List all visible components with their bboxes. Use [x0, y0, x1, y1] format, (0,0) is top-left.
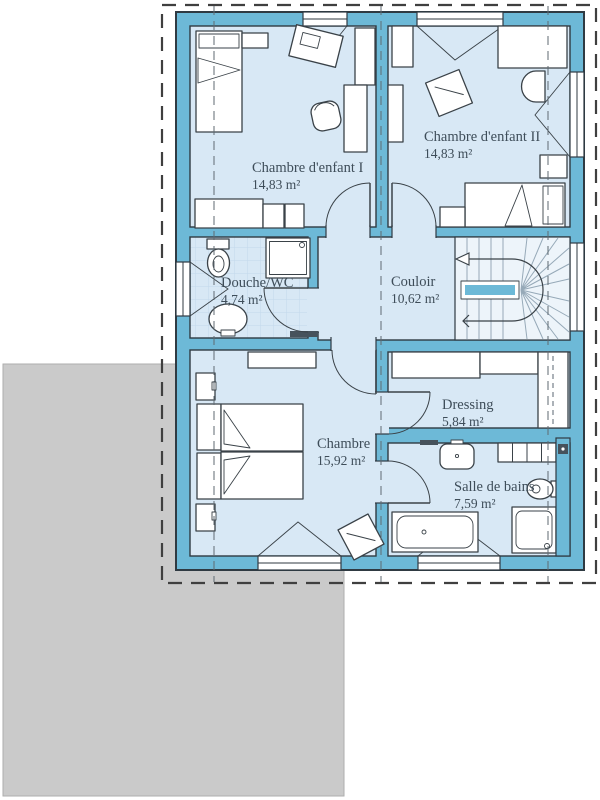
- cabinet-row: [498, 443, 556, 462]
- room-area: 5,84 m²: [442, 414, 484, 429]
- shelf: [242, 33, 268, 48]
- shelf: [420, 440, 438, 445]
- cabinet: [355, 28, 375, 85]
- stair-rail: [465, 285, 515, 295]
- pillow: [199, 34, 239, 48]
- room-area: 10,62 m²: [391, 291, 439, 306]
- shower: [266, 238, 310, 278]
- floor-plan-page: Chambre d'enfant I 14,83 m² Chambre d'en…: [0, 0, 600, 800]
- storage-box: [263, 204, 284, 228]
- storage-box: [285, 204, 304, 228]
- wardrobe: [538, 352, 568, 428]
- wardrobe: [195, 199, 263, 228]
- pillow: [543, 186, 563, 224]
- cabinet: [392, 26, 413, 67]
- chair: [309, 99, 342, 132]
- toilet: [207, 239, 230, 277]
- room-area: 14,83 m²: [424, 146, 472, 161]
- room-area: 7,59 m²: [454, 496, 496, 511]
- room-label: Douche/WC: [221, 275, 293, 291]
- shower: [512, 507, 556, 553]
- pillow: [197, 453, 221, 499]
- room-label: Chambre d'enfant II: [424, 129, 540, 145]
- desk: [498, 26, 567, 68]
- room-label: Dressing: [442, 397, 494, 413]
- room-area: 4,74 m²: [221, 292, 263, 307]
- wardrobe: [248, 352, 316, 368]
- shaft-dot: [561, 447, 564, 450]
- wardrobe: [392, 352, 480, 378]
- pillow: [197, 404, 221, 450]
- desk: [344, 85, 367, 152]
- bathtub: [392, 512, 478, 552]
- room-label: Salle de bains: [454, 479, 535, 495]
- room-label: Couloir: [391, 274, 435, 290]
- nightstand: [540, 155, 567, 178]
- washbasin: [440, 440, 474, 469]
- nightstand: [440, 207, 465, 227]
- room-label: Chambre d'enfant I: [252, 160, 363, 176]
- wardrobe: [480, 352, 538, 374]
- room-area: 15,92 m²: [317, 453, 365, 468]
- floor-plan: Chambre d'enfant I 14,83 m² Chambre d'en…: [0, 0, 600, 800]
- cabinet: [388, 85, 403, 142]
- staircase: [455, 237, 570, 340]
- installation-wall: [556, 438, 570, 556]
- room-label: Chambre: [317, 436, 370, 452]
- building: Chambre d'enfant I 14,83 m² Chambre d'en…: [176, 12, 584, 570]
- chair: [522, 71, 545, 102]
- room-area: 14,83 m²: [252, 177, 300, 192]
